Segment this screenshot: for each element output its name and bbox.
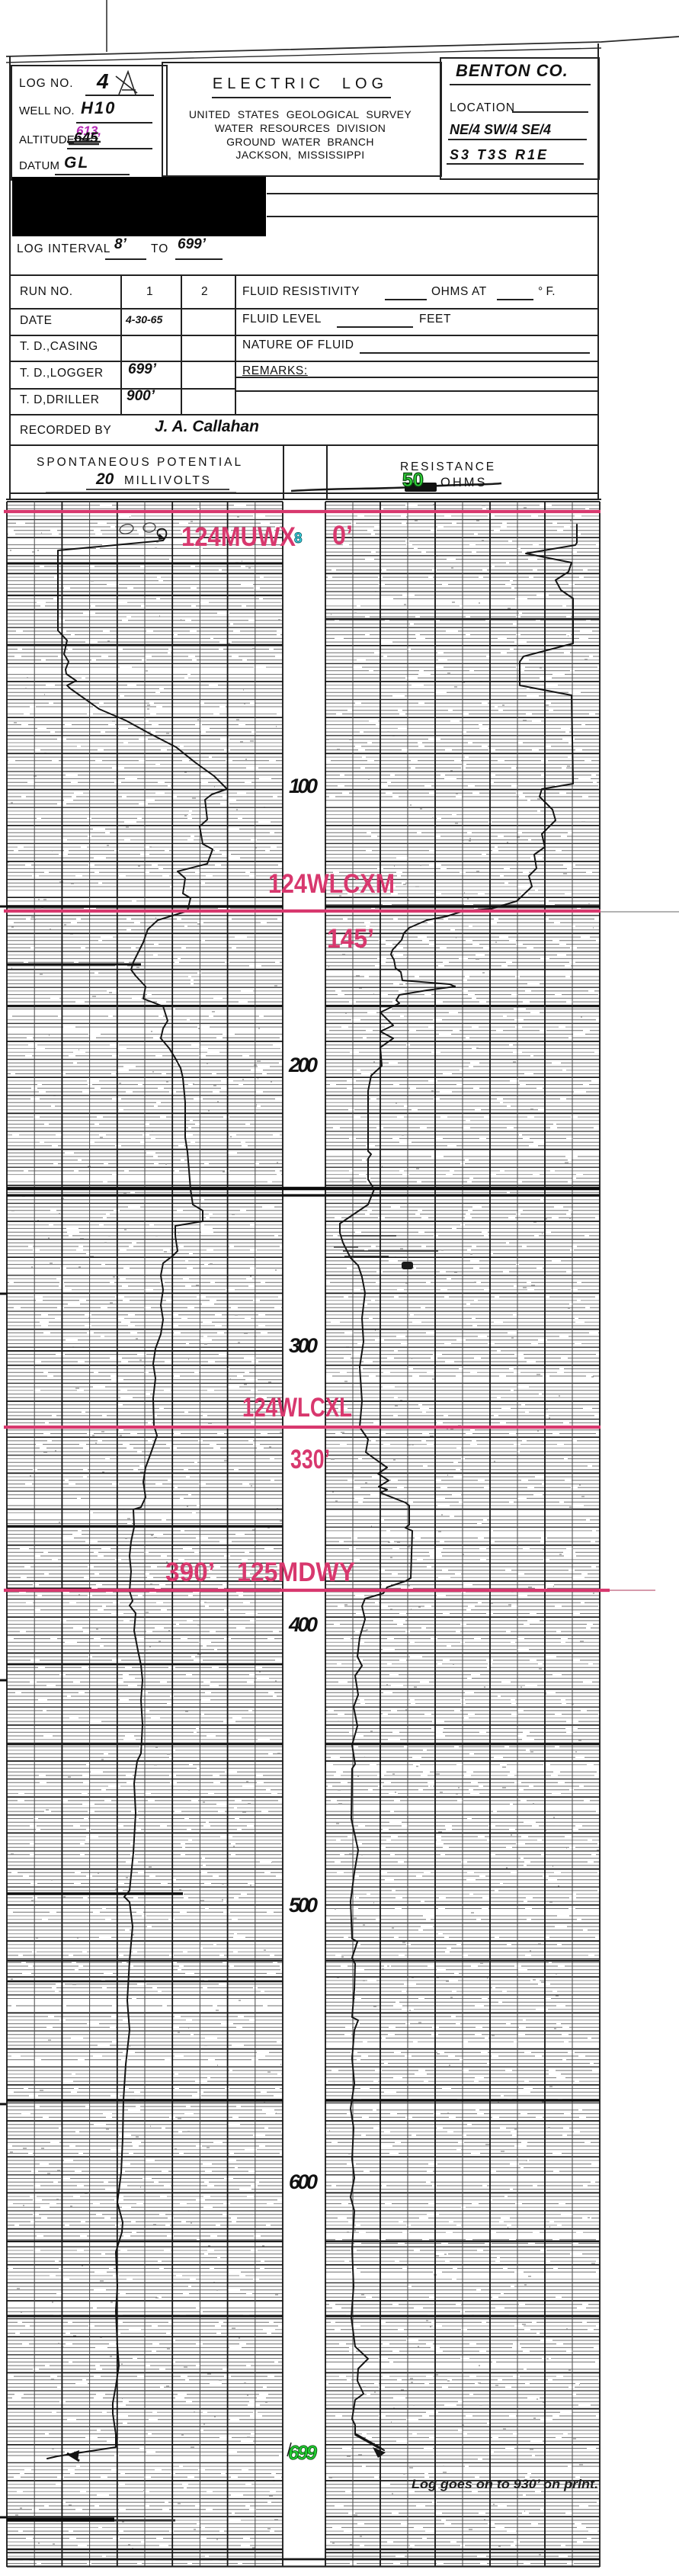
svg-text:124WLCXM: 124WLCXM — [268, 869, 395, 899]
svg-text:8: 8 — [294, 531, 303, 547]
svg-text:600: 600 — [289, 2170, 318, 2193]
svg-text:699: 699 — [288, 2441, 318, 2464]
svg-text:100: 100 — [289, 775, 318, 797]
svg-text:500: 500 — [289, 1894, 318, 1917]
svg-text:Log goes on to 930’ on print.: Log goes on to 930’ on print. — [412, 2477, 598, 2491]
svg-text:145’: 145’ — [327, 924, 374, 954]
svg-text:124WLCXL: 124WLCXL — [242, 1393, 352, 1423]
svg-text:0’: 0’ — [332, 521, 353, 550]
svg-text:330’: 330’ — [290, 1445, 330, 1474]
svg-text:125MDWY: 125MDWY — [237, 1557, 355, 1587]
svg-text:200: 200 — [288, 1054, 318, 1076]
svg-text:300: 300 — [289, 1334, 318, 1357]
svg-text:50: 50 — [402, 470, 424, 491]
svg-text:400: 400 — [288, 1613, 318, 1636]
svg-text:390’: 390’ — [165, 1557, 215, 1587]
svg-text:124MUWX: 124MUWX — [181, 522, 296, 552]
